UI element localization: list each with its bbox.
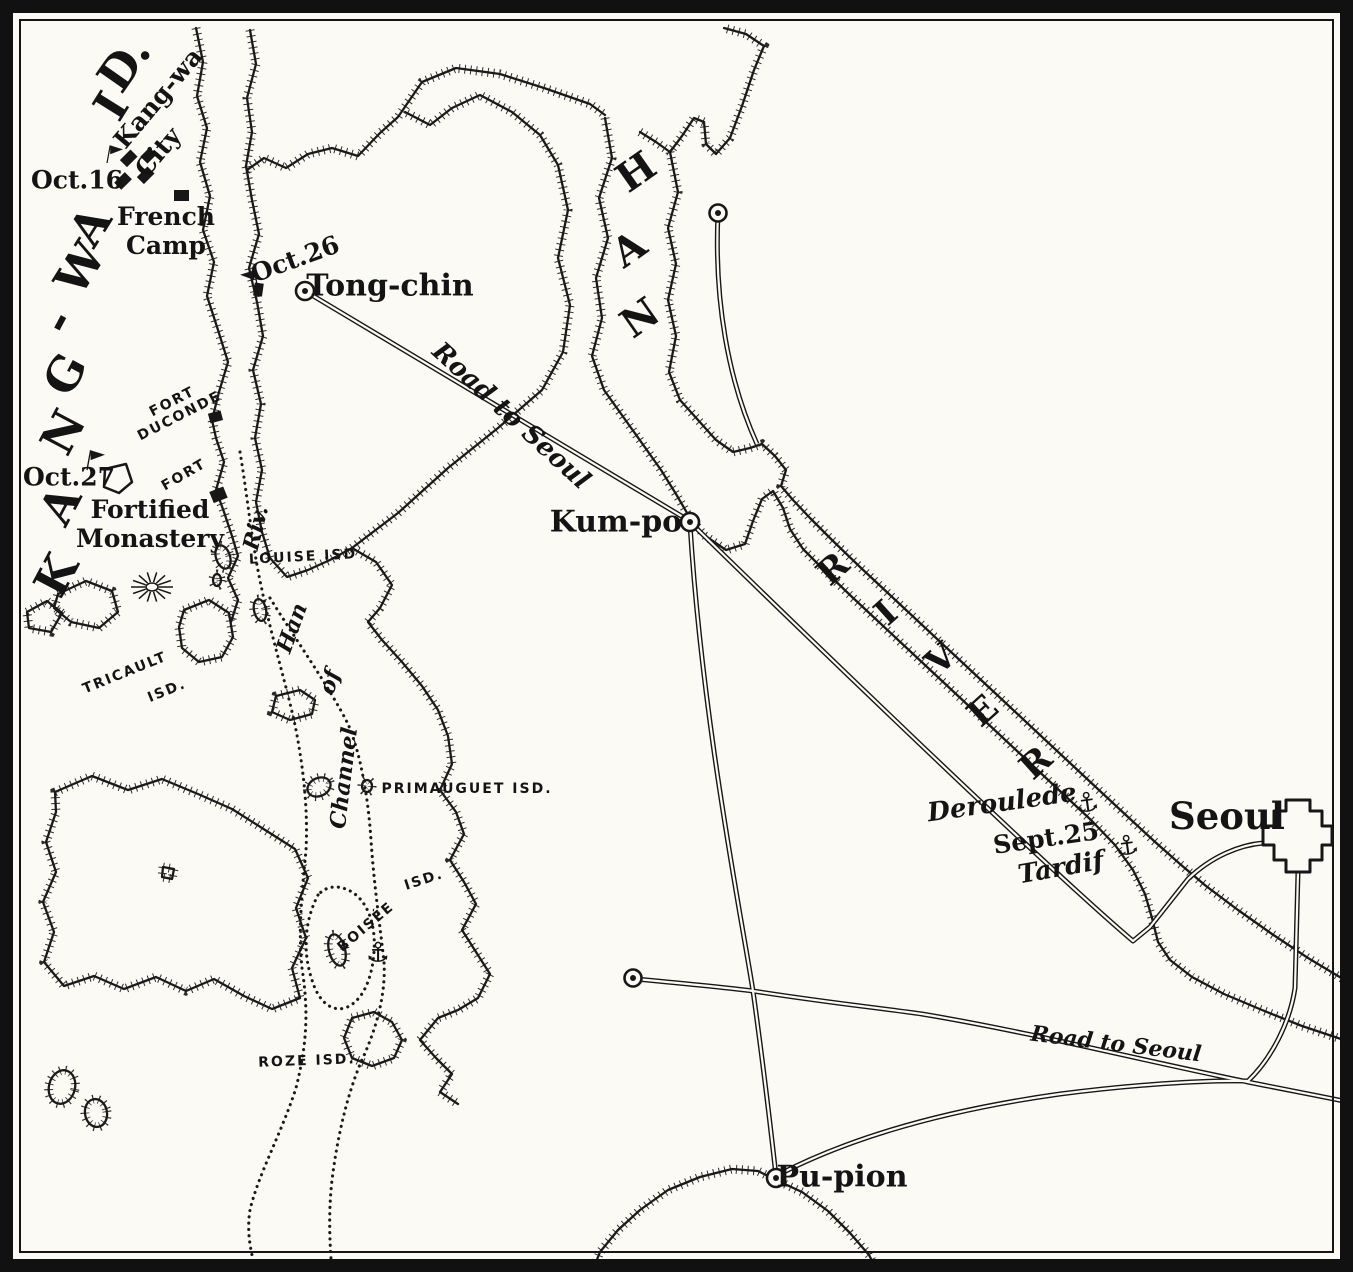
label-primauguet-isd: PRIMAUGUET ISD. — [381, 781, 552, 797]
label-deroulede: Deroulede — [926, 778, 1079, 829]
anchor-boisee-icon: ⚓ — [366, 938, 390, 969]
label-boisee-isd: ISD. — [402, 866, 445, 894]
river-letter-r1: R — [808, 544, 857, 594]
label-french-camp: French Camp — [117, 202, 215, 260]
island-letter-hyphen: - — [29, 300, 86, 342]
label-road-to-seoul-2: Road to Seoul — [1029, 1021, 1203, 1068]
island-letter-k: K — [23, 545, 89, 606]
label-oct27: Oct.27 — [23, 463, 115, 492]
map-labels: KANG-WAID.HANRIVERKang-waCityOct.16Frenc… — [0, 0, 1353, 1272]
label-fort-duconde: FORT DUCONDE — [128, 374, 225, 444]
label-kum-po: Kum-po — [550, 505, 682, 540]
label-han-word: Han — [271, 600, 313, 657]
label-seoul: Seoul — [1169, 794, 1285, 838]
river-letter-i: I — [866, 592, 906, 633]
label-louise-isd: LOUISE ISD — [248, 546, 357, 568]
label-channel: Channel — [325, 726, 363, 831]
label-tricault-isd: ISD. — [145, 676, 188, 706]
label-of: of — [314, 667, 346, 698]
label-tong-chin: Tong-chin — [306, 269, 473, 304]
anchor-deroulede-icon: ⚓ — [1073, 786, 1101, 820]
han-letter-n: N — [612, 288, 669, 347]
island-letter-g: G — [32, 344, 98, 404]
label-fort: FORT — [159, 456, 210, 494]
label-fortified-monastery: Fortified Monastery — [76, 495, 224, 553]
river-letter-e: E — [959, 687, 1006, 735]
map-page: KANG-WAID.HANRIVERKang-waCityOct.16Frenc… — [0, 0, 1353, 1272]
island-letter-n: N — [29, 401, 96, 463]
label-oct16: Oct.16 — [31, 166, 123, 195]
river-letter-v: V — [917, 635, 965, 684]
han-letter-a: A — [603, 221, 655, 277]
han-letter-h: H — [607, 142, 665, 202]
label-road-to-seoul-1: Road to Seoul — [426, 336, 596, 495]
label-roze-isd: ROZE ISD. — [258, 1051, 356, 1070]
label-pu-pion: Pu-pion — [776, 1160, 907, 1195]
anchor-tardif-icon: ⚓ — [1113, 829, 1141, 863]
label-riv: Riv. — [238, 503, 274, 553]
